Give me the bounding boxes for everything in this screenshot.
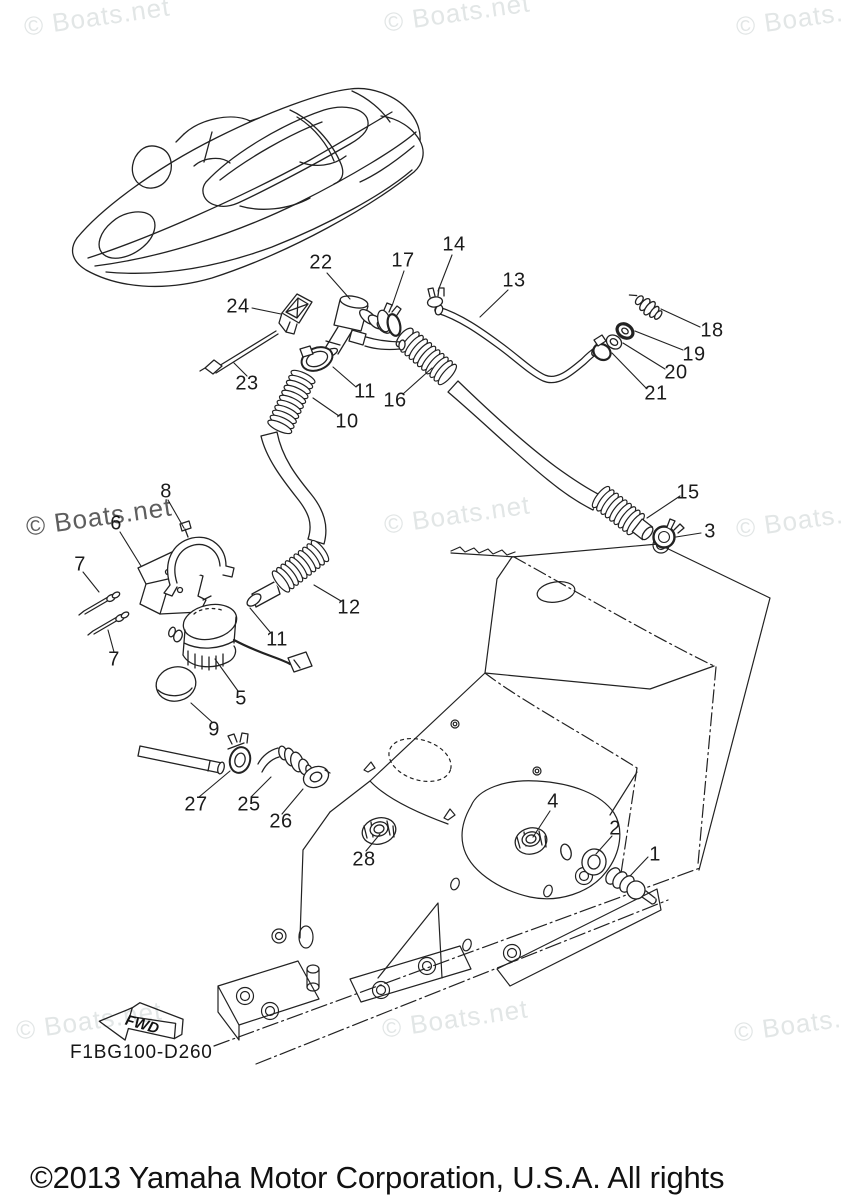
hose-15-corrugation — [589, 484, 658, 546]
part-number-2: 2 — [609, 818, 621, 841]
part-number-26: 26 — [269, 811, 292, 834]
nut-4 — [512, 824, 550, 857]
part-number-18: 18 — [700, 320, 723, 343]
part-number-14: 14 — [442, 234, 465, 257]
part-number-22: 22 — [309, 252, 332, 275]
pin-7-upper — [79, 591, 121, 615]
part-number-11: 11 — [266, 629, 288, 652]
part-number-23: 23 — [235, 373, 258, 396]
part-number-27: 27 — [184, 794, 207, 817]
part-number-9: 9 — [208, 719, 220, 742]
part-number-12: 12 — [337, 597, 360, 620]
fitting-18 — [626, 287, 665, 323]
spacer-oval — [559, 843, 573, 861]
diagram-line-art: FWD — [0, 0, 842, 1200]
part-number-7: 7 — [74, 554, 86, 577]
jet-ski-drawing — [73, 88, 424, 286]
elbow-fitting-25 — [258, 745, 313, 776]
part-number-24: 24 — [226, 296, 249, 319]
washer-2 — [580, 847, 608, 877]
part-number-13: 13 — [502, 270, 525, 293]
part-number-15: 15 — [676, 482, 699, 505]
part-number-11: 11 — [354, 381, 376, 404]
part-number-17: 17 — [391, 250, 414, 273]
part-number-28: 28 — [352, 849, 375, 872]
pinch-clamp-27 — [227, 733, 253, 775]
part-number-1: 1 — [649, 844, 661, 867]
copyright-text: ©2013 Yamaha Motor Corporation, U.S.A. A… — [30, 1160, 842, 1200]
nut-28 — [359, 814, 399, 848]
drain-plug-1 — [603, 865, 656, 904]
hose-clamp-11-upper — [298, 343, 336, 375]
hose-clamp-3 — [654, 519, 685, 548]
hose-16-corrugation — [392, 324, 459, 387]
part-number-21: 21 — [644, 383, 667, 406]
bracket-24 — [279, 294, 312, 334]
hose-10-corrugation — [266, 367, 317, 436]
parts-diagram-page: FWD 221714131819202124231110161538677591… — [0, 0, 842, 1200]
hull-structure-drawing — [214, 537, 770, 1064]
float-switch-9 — [152, 662, 199, 705]
part-number-7: 7 — [108, 649, 120, 672]
part-number-20: 20 — [664, 362, 687, 385]
part-number-3: 3 — [704, 521, 716, 544]
part-number-25: 25 — [237, 794, 260, 817]
part-number-6: 6 — [110, 513, 122, 536]
part-number-16: 16 — [383, 390, 406, 413]
part-number-4: 4 — [547, 791, 559, 814]
drain-tube — [138, 746, 225, 775]
diagram-code: F1BG100-D260 — [70, 1042, 213, 1064]
part-number-10: 10 — [335, 411, 358, 434]
hose-13-drawing — [434, 304, 602, 379]
part-number-5: 5 — [235, 688, 247, 711]
part-number-8: 8 — [160, 481, 172, 504]
